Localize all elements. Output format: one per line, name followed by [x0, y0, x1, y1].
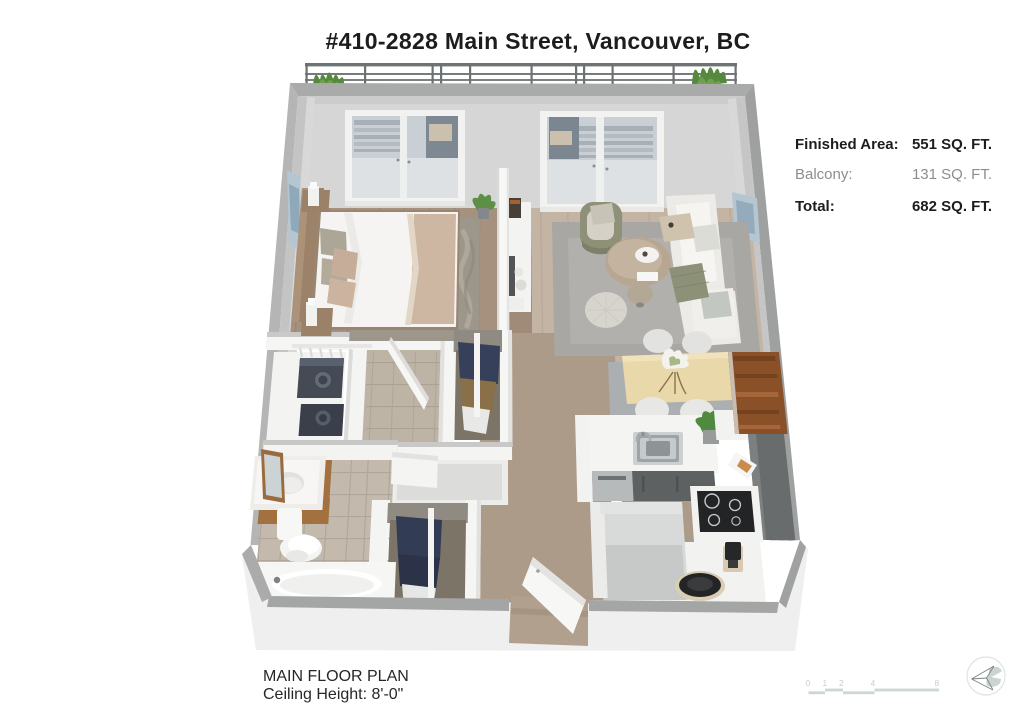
svg-text:0: 0 — [806, 678, 811, 688]
svg-text:2: 2 — [839, 678, 844, 688]
svg-text:8: 8 — [935, 678, 940, 688]
svg-text:4: 4 — [871, 678, 876, 688]
svg-text:1: 1 — [823, 678, 828, 688]
